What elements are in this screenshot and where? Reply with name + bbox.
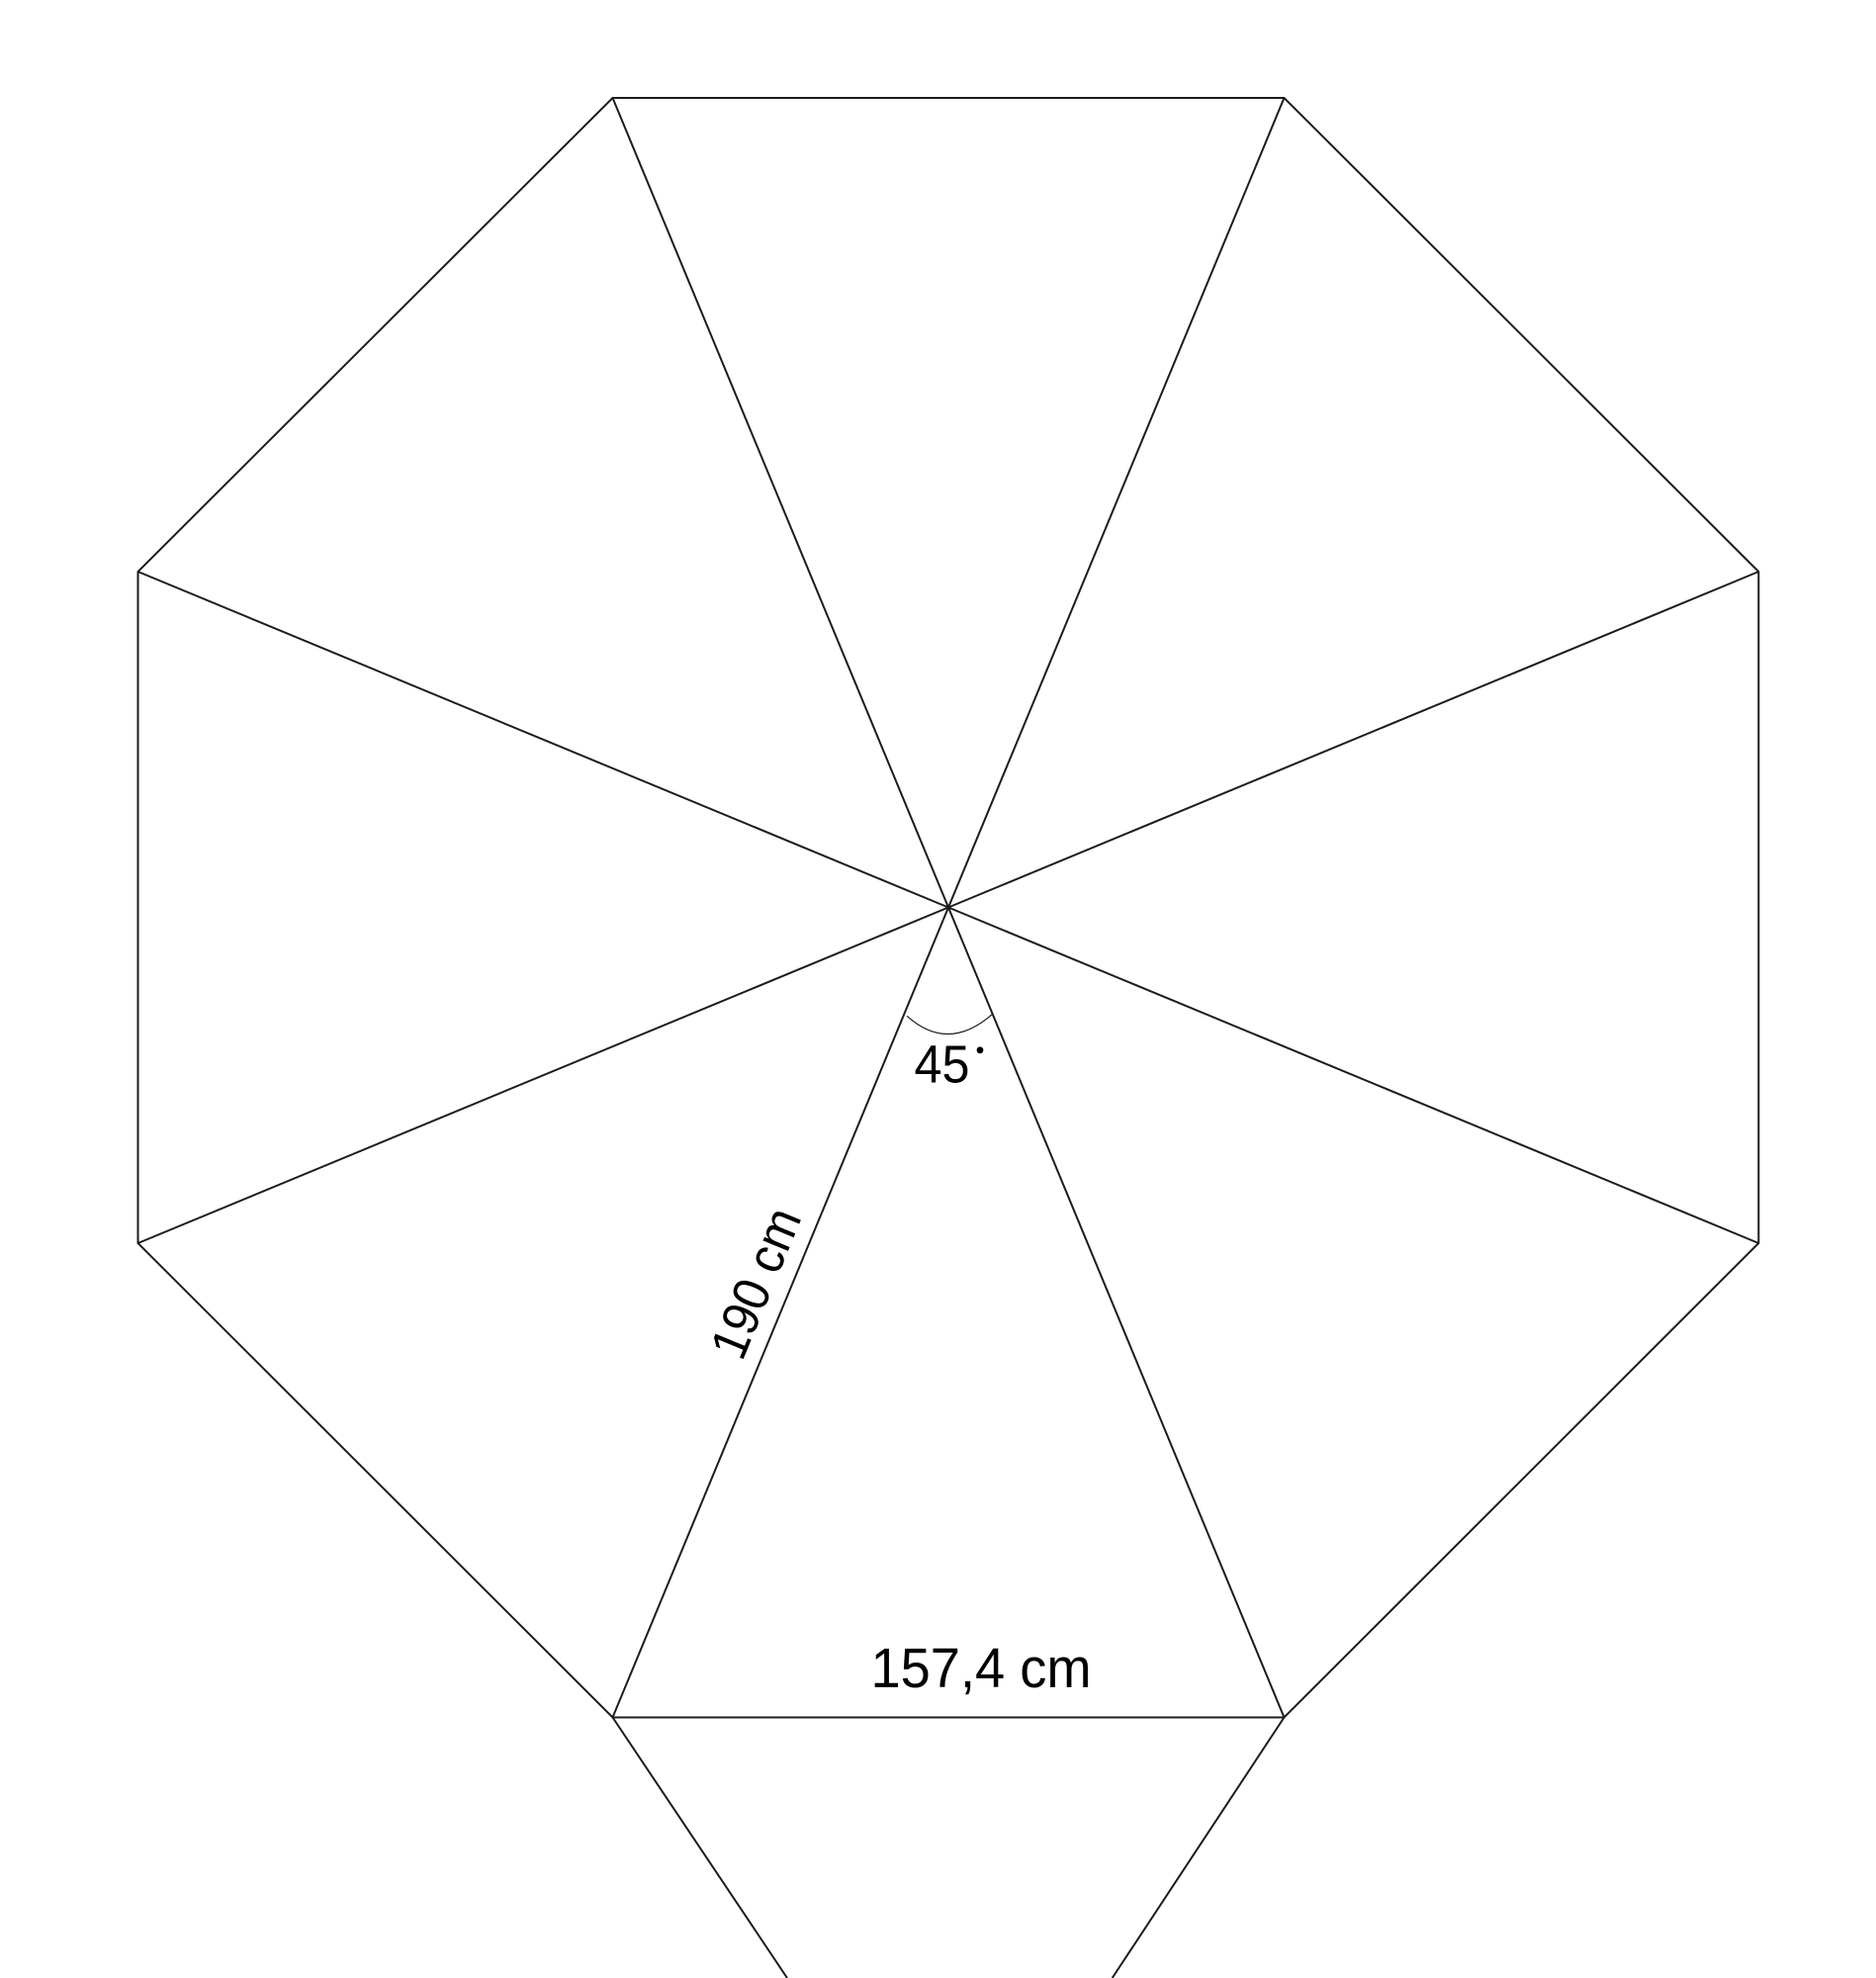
svg-text:190 cm: 190 cm — [700, 1200, 813, 1367]
svg-text:157,4 cm: 157,4 cm — [871, 1637, 1092, 1700]
svg-text:45: 45 — [915, 1036, 970, 1095]
